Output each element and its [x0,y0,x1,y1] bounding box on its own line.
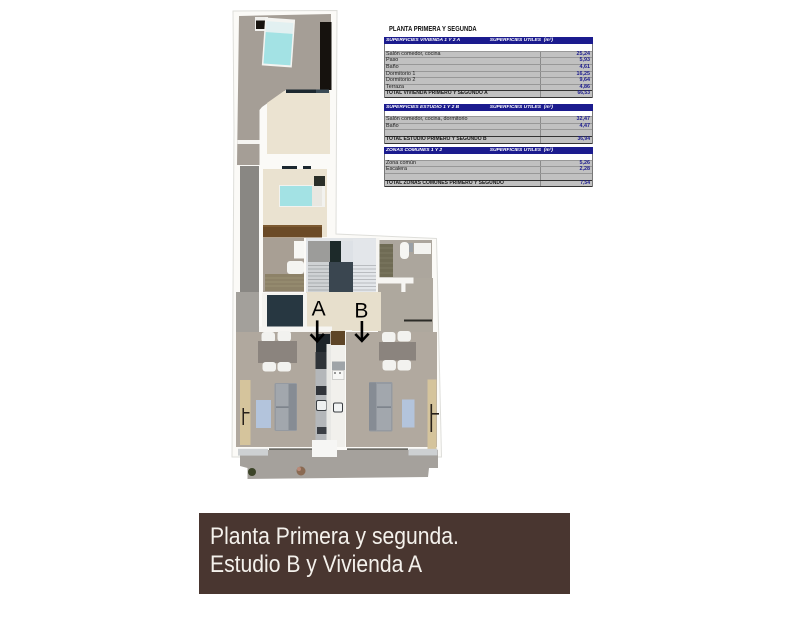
svg-text:A: A [312,298,326,321]
svg-text:B: B [354,299,368,322]
